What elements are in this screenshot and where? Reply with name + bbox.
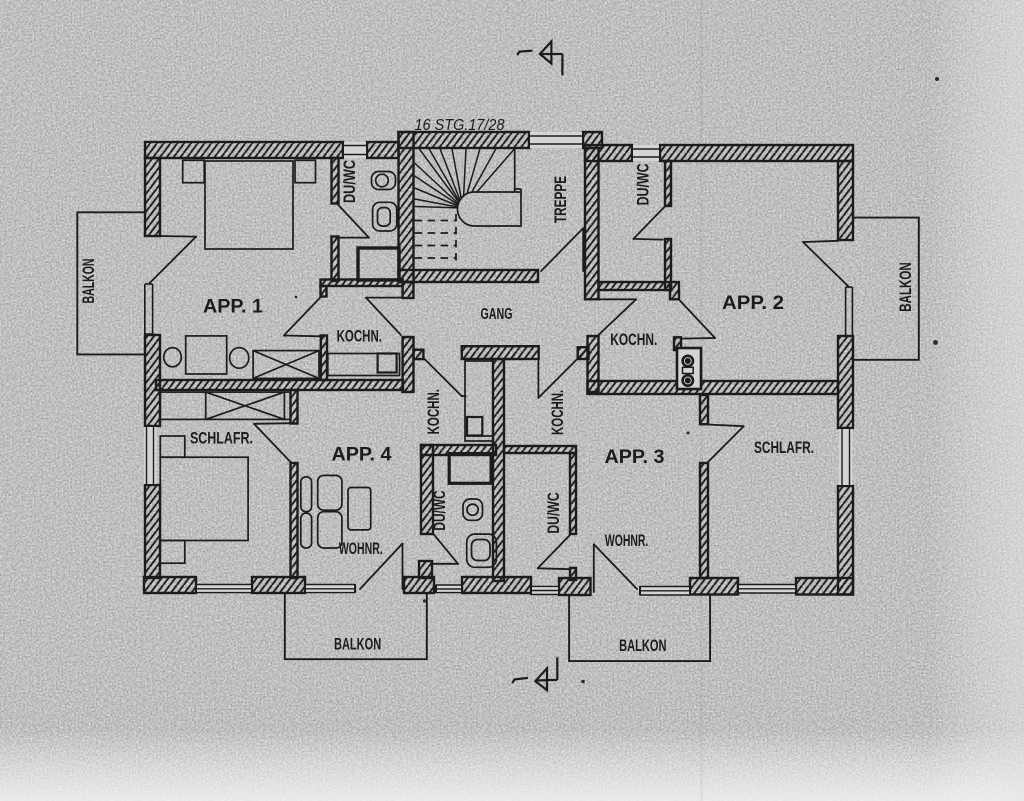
svg-text:KOCHN.: KOCHN. <box>548 390 567 435</box>
svg-text:BALKON: BALKON <box>619 636 666 655</box>
svg-text:GANG: GANG <box>481 306 513 323</box>
svg-text:APP. 4: APP. 4 <box>332 445 392 466</box>
svg-text:APP. 3: APP. 3 <box>605 447 665 468</box>
svg-text:SCHLAFR.: SCHLAFR. <box>190 428 253 447</box>
svg-text:TREPPE: TREPPE <box>551 176 570 223</box>
svg-text:KOCHN.: KOCHN. <box>610 330 657 349</box>
svg-text:WOHNR.: WOHNR. <box>339 539 383 558</box>
svg-text:BALKON: BALKON <box>896 262 915 311</box>
svg-text:DU/WC: DU/WC <box>430 490 449 530</box>
svg-text:APP. 2: APP. 2 <box>722 293 784 314</box>
svg-text:BALKON: BALKON <box>334 634 381 653</box>
svg-text:SCHLAFR.: SCHLAFR. <box>754 438 814 457</box>
svg-text:DU/WC: DU/WC <box>544 492 563 533</box>
svg-text:DU/WC: DU/WC <box>340 160 359 203</box>
svg-text:WOHNR.: WOHNR. <box>605 531 648 550</box>
svg-text:APP. 1: APP. 1 <box>203 297 263 318</box>
svg-text:16 STG.17/28: 16 STG.17/28 <box>415 117 505 134</box>
svg-text:DU/WC: DU/WC <box>633 163 652 205</box>
svg-text:BALKON: BALKON <box>79 259 98 304</box>
svg-text:KOCHN.: KOCHN. <box>337 326 382 345</box>
svg-text:KOCHN.: KOCHN. <box>424 389 443 434</box>
